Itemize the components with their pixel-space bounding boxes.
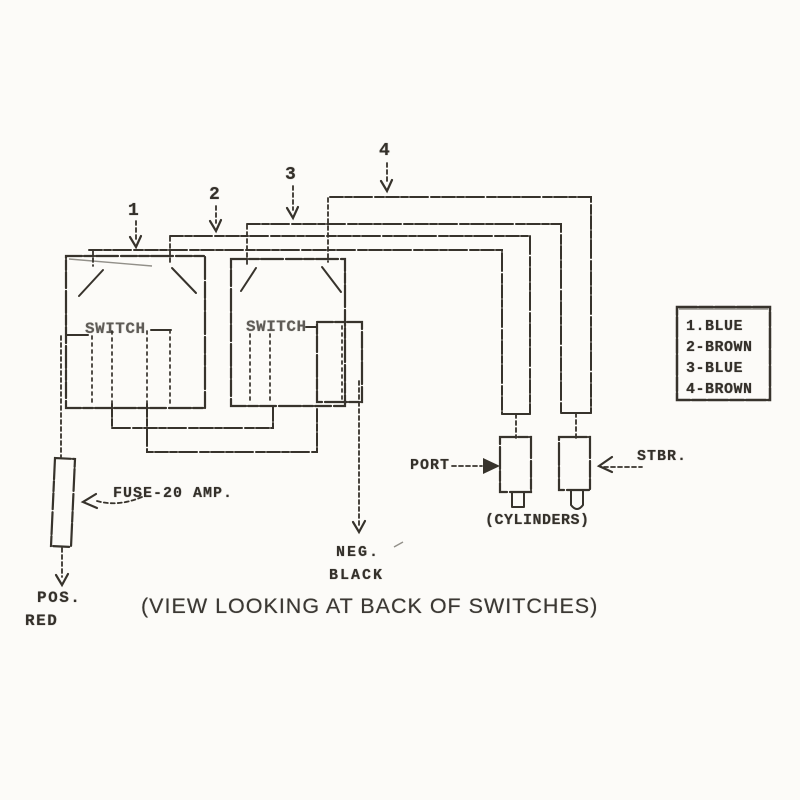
- legend-items: 1.BLUE 2-BROWN 3-BLUE 4-BROWN: [677, 307, 770, 400]
- view-caption: (VIEW LOOKING AT BACK OF SWITCHES): [141, 596, 598, 618]
- port-pointer-head: [483, 458, 500, 474]
- fuse-pointer-head: [83, 494, 97, 508]
- fuse-body: [51, 458, 75, 547]
- wire-number-arrows: [130, 163, 392, 247]
- switch-2-terminal-block: [317, 322, 362, 402]
- switch-2: [231, 198, 362, 406]
- stbr-cylinder-legs: [571, 490, 583, 509]
- stbr-pointer-head: [599, 457, 612, 472]
- stbr-label: STBR.: [637, 449, 687, 464]
- red-label: RED: [25, 613, 58, 629]
- wire-number-4: 4: [379, 142, 390, 160]
- wire-number-3: 3: [285, 166, 296, 184]
- switch-2-right-contact: [322, 267, 341, 292]
- positive-lead: [51, 336, 142, 585]
- legend-item-4: 4-BROWN: [686, 379, 770, 400]
- wiring-diagram: [0, 0, 800, 800]
- port-label: PORT: [410, 458, 450, 473]
- wire-4-path: [330, 197, 591, 413]
- scan-smudge-line: [69, 259, 152, 266]
- switch-1-label: SWITCH: [85, 321, 146, 337]
- switch-2-left-contact: [241, 268, 256, 291]
- cylinders-group: [452, 437, 642, 509]
- stbr-cylinder: [559, 437, 590, 490]
- pos-label: POS.: [37, 590, 81, 606]
- scanned-wiring-diagram-page: 1 2 3 4 SWITCH SWITCH FUSE-20 AMP. POS. …: [0, 0, 800, 800]
- switch-1-right-contact: [172, 268, 196, 293]
- wire-2-path: [170, 236, 530, 414]
- switch-link-wires: [112, 404, 317, 452]
- black-label: BLACK: [329, 568, 384, 583]
- neg-label: NEG.: [336, 545, 380, 560]
- port-cylinder-legs: [512, 492, 524, 507]
- negative-lead: [353, 381, 403, 547]
- cylinders-label: (CYLINDERS): [485, 513, 590, 528]
- switch-2-label: SWITCH: [246, 319, 307, 335]
- wire-number-1: 1: [128, 202, 139, 220]
- port-cylinder: [500, 437, 531, 492]
- switch-1-left-contact: [79, 270, 103, 296]
- fuse-label: FUSE-20 AMP.: [113, 486, 233, 501]
- legend-item-1: 1.BLUE: [686, 316, 770, 337]
- legend-item-2: 2-BROWN: [686, 337, 770, 358]
- wire-number-2: 2: [209, 186, 220, 204]
- legend-item-3: 3-BLUE: [686, 358, 770, 379]
- scan-tick-mark: [394, 542, 403, 547]
